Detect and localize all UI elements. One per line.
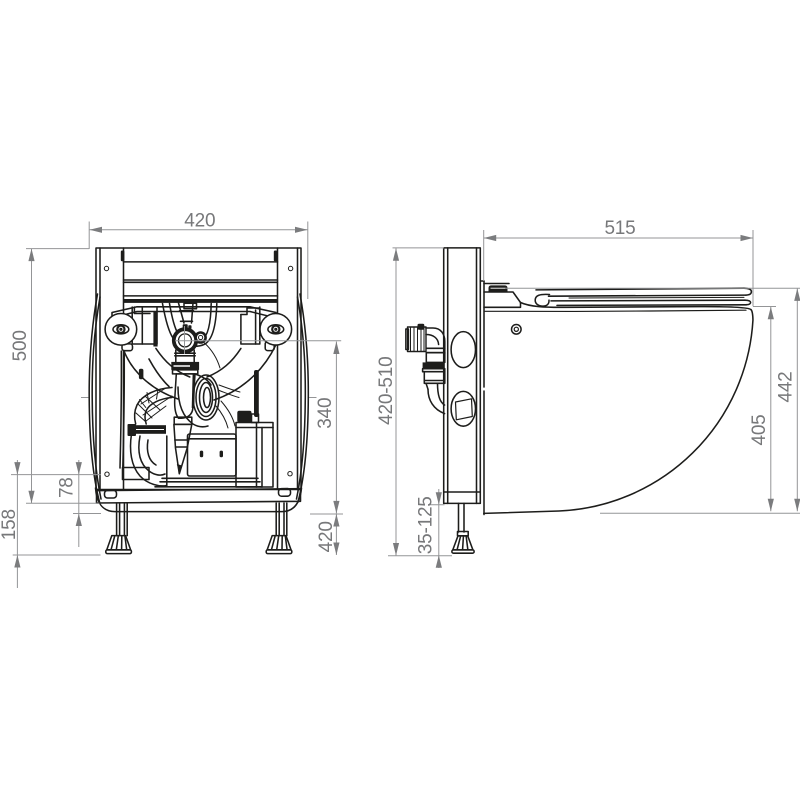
svg-text:420: 420: [316, 521, 337, 552]
svg-text:78: 78: [57, 477, 78, 498]
svg-text:420: 420: [184, 210, 215, 231]
svg-text:158: 158: [0, 509, 20, 540]
svg-text:500: 500: [10, 330, 31, 361]
svg-text:405: 405: [749, 414, 770, 445]
svg-text:515: 515: [604, 218, 635, 239]
svg-text:420-510: 420-510: [376, 357, 397, 425]
svg-text:340: 340: [315, 398, 336, 429]
svg-text:35-125: 35-125: [416, 496, 437, 554]
svg-text:442: 442: [776, 371, 797, 402]
